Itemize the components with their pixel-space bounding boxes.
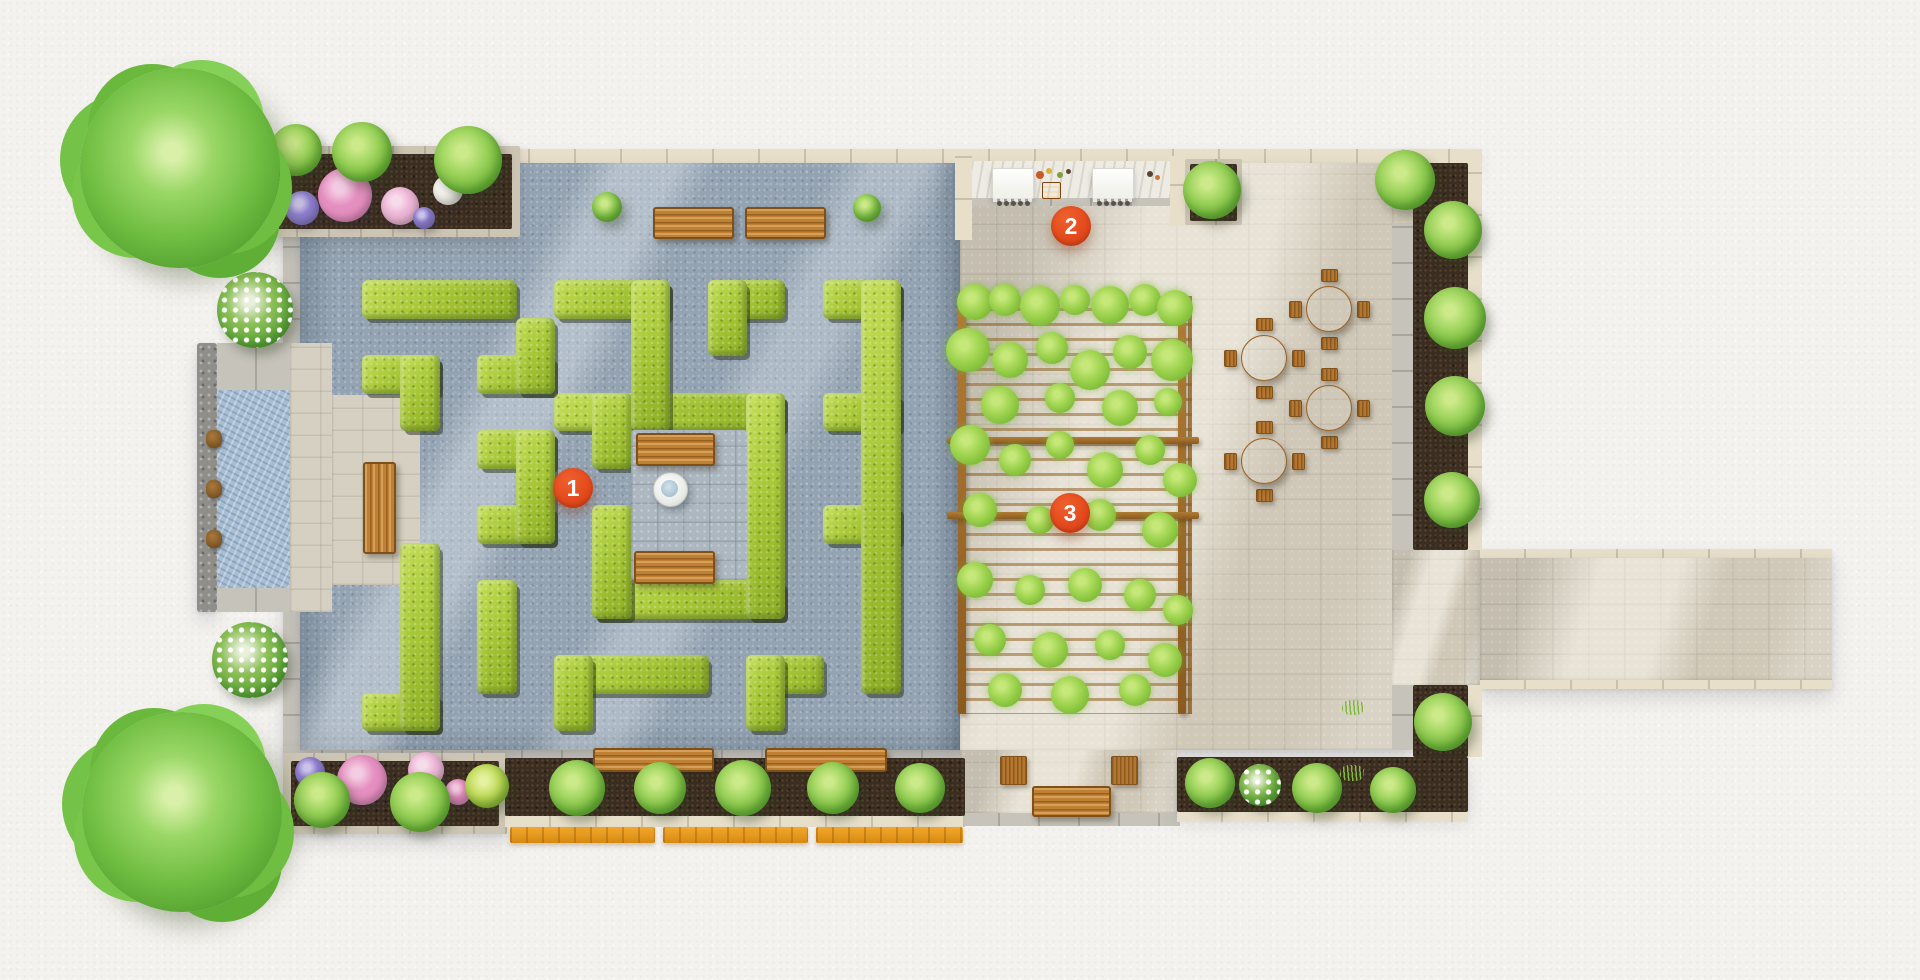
patio-chair (1256, 421, 1273, 434)
flower-cluster (285, 191, 319, 225)
pergola-vine (1036, 332, 1068, 364)
wood-bench (363, 462, 396, 554)
kiosk-food-item (1147, 171, 1153, 177)
shrub (465, 764, 509, 808)
kiosk-food-item (1066, 169, 1071, 174)
pergola-vine (1113, 335, 1147, 369)
stone-walkway (1480, 558, 1832, 680)
bottom-right-curb (1177, 812, 1468, 822)
pergola-vine (1060, 285, 1090, 315)
pergola-vine (992, 342, 1028, 378)
shrub (1370, 767, 1416, 813)
patio-chair (1289, 400, 1302, 417)
maze-hedge (554, 655, 593, 731)
pergola-vine (1157, 290, 1193, 326)
pergola-vine (1124, 579, 1156, 611)
pergola-vine (974, 624, 1006, 656)
patio-table (1306, 385, 1352, 431)
shrub (217, 272, 293, 348)
pergola-vine (999, 444, 1031, 476)
maze-hedge (362, 280, 517, 319)
wood-chair (1000, 756, 1027, 785)
pool-spout (206, 530, 222, 548)
kiosk-stool (1004, 201, 1009, 206)
maze-hedge (516, 430, 555, 544)
bottom-curb (505, 816, 965, 827)
boardwalk-segment (816, 827, 963, 843)
patio-table (1241, 438, 1287, 484)
pergola-vine (1129, 284, 1161, 316)
pergola-vine (1163, 463, 1197, 497)
shrub (390, 772, 450, 832)
kiosk-food-item (1155, 175, 1160, 180)
grass-tuft (1340, 765, 1364, 781)
pergola-vine (988, 673, 1022, 707)
shrub (634, 762, 686, 814)
pergola-vine (946, 328, 990, 372)
pergola-vine (1045, 383, 1075, 413)
maze-hedge (400, 355, 439, 431)
boardwalk-segment (663, 827, 808, 843)
maze-hedge (708, 280, 747, 356)
pergola-vine (981, 386, 1019, 424)
shrub (1292, 763, 1342, 813)
pergola-vine (1091, 286, 1129, 324)
pergola-vine (1015, 575, 1045, 605)
maze-hedge (631, 280, 670, 431)
maze-hedge (746, 393, 785, 619)
patio-table (1306, 286, 1352, 332)
shrub (294, 772, 350, 828)
pergola-vine (1151, 339, 1193, 381)
pergola-vine (1102, 390, 1138, 426)
maze-hedge (400, 543, 439, 732)
patio-chair (1224, 350, 1237, 367)
kiosk-stool (1104, 201, 1109, 206)
pergola-vine (1020, 286, 1060, 326)
shrub (853, 194, 881, 222)
pergola-vine (1119, 674, 1151, 706)
maze-hedge (516, 318, 555, 394)
patio-right-wall-lower (1392, 685, 1413, 750)
shrub (1239, 764, 1281, 806)
plan-marker-1[interactable]: 1 (553, 468, 593, 508)
kiosk-awning-right (1092, 168, 1134, 199)
wood-bench (1032, 786, 1111, 817)
pergola-vine (1148, 643, 1182, 677)
plan-marker-2[interactable]: 2 (1051, 206, 1091, 246)
garden-plan (0, 0, 1920, 980)
garden-plan-canvas: 1 2 3 (0, 0, 1920, 980)
shrub (1424, 472, 1480, 528)
marker-1-label: 1 (567, 475, 580, 502)
kiosk-awning-left (992, 168, 1034, 199)
patio-chair (1224, 453, 1237, 470)
pergola-vine (950, 425, 990, 465)
kiosk-market-crate (1042, 182, 1061, 199)
shrub (1424, 287, 1486, 349)
shrub (1424, 201, 1482, 259)
patio-chair (1321, 436, 1338, 449)
pergola-vine (1142, 512, 1178, 548)
walkway-top-edge (1480, 549, 1832, 558)
shrub (895, 763, 945, 813)
reflecting-pool (217, 390, 290, 588)
flower-cluster (413, 207, 435, 229)
patio-chair (1256, 489, 1273, 502)
shrub (1425, 376, 1485, 436)
kiosk-stool (1018, 201, 1023, 206)
patio-chair (1292, 453, 1305, 470)
shrub (592, 192, 622, 222)
pool-spout (206, 480, 222, 498)
pergola-vine (963, 493, 997, 527)
marker-2-label: 2 (1065, 213, 1078, 240)
maze-hedge (746, 655, 785, 731)
maze-fountain-water (661, 480, 678, 497)
kiosk-stool (1111, 201, 1116, 206)
pergola-vine (1135, 435, 1165, 465)
kiosk-stool (997, 201, 1002, 206)
kiosk-food-item (1046, 168, 1052, 174)
wood-bench (653, 207, 734, 239)
pergola-vine (1068, 568, 1102, 602)
wood-chair (1111, 756, 1138, 785)
maze-hedge (592, 393, 631, 469)
kiosk-stool (1125, 201, 1130, 206)
patio-chair (1256, 318, 1273, 331)
shrub (549, 760, 605, 816)
shrub (1375, 150, 1435, 210)
patio-chair (1321, 368, 1338, 381)
patio-chair (1256, 386, 1273, 399)
maze-hedge (477, 580, 516, 694)
patio-chair (1289, 301, 1302, 318)
wood-bench (634, 551, 715, 584)
pergola-vine (1095, 630, 1125, 660)
kiosk-food-item (1036, 171, 1044, 179)
patio-chair (1292, 350, 1305, 367)
kiosk-stool (1118, 201, 1123, 206)
pergola-vine (957, 284, 993, 320)
wood-bench (636, 433, 715, 466)
pergola-vine (1163, 595, 1193, 625)
kiosk-stool (1097, 201, 1102, 206)
patio-chair (1357, 301, 1370, 318)
marker-3-label: 3 (1064, 500, 1077, 527)
shrub (807, 762, 859, 814)
plan-marker-3[interactable]: 3 (1050, 493, 1090, 533)
large-tree (82, 712, 282, 912)
pergola-vine (1051, 676, 1089, 714)
pool-spout (206, 430, 222, 448)
kiosk-food-item (1057, 172, 1063, 178)
kiosk-left-wall (955, 156, 972, 240)
patio-right-wall-upper (1392, 223, 1413, 550)
patio-chair (1357, 400, 1370, 417)
shrub (715, 760, 771, 816)
kiosk-stool (1011, 201, 1016, 206)
shrub (332, 122, 392, 182)
pergola-vine (1070, 350, 1110, 390)
shrub (434, 126, 502, 194)
patio-table (1241, 335, 1287, 381)
pergola-vine (957, 562, 993, 598)
maze-hedge (592, 505, 631, 619)
patio-chair (1321, 337, 1338, 350)
patio-chair (1321, 269, 1338, 282)
large-tree (80, 68, 280, 268)
shrub (1183, 161, 1241, 219)
pergola-vine (1046, 431, 1074, 459)
walkway-junction (1392, 550, 1480, 685)
grass-tuft (1342, 700, 1364, 715)
boardwalk-segment (510, 827, 655, 843)
pergola-vine (1154, 388, 1182, 416)
pergola-vine (1032, 632, 1068, 668)
shrub (1185, 758, 1235, 808)
kiosk-stool (1025, 201, 1030, 206)
pergola-vine (989, 284, 1021, 316)
wood-bench (745, 207, 826, 239)
shrub (212, 622, 288, 698)
poolside-path (290, 343, 332, 612)
walkway-bottom-edge (1480, 680, 1832, 689)
shrub (1414, 693, 1472, 751)
pergola-vine (1087, 452, 1123, 488)
water-feature-outer-wall (197, 343, 217, 612)
maze-hedge (861, 280, 900, 694)
